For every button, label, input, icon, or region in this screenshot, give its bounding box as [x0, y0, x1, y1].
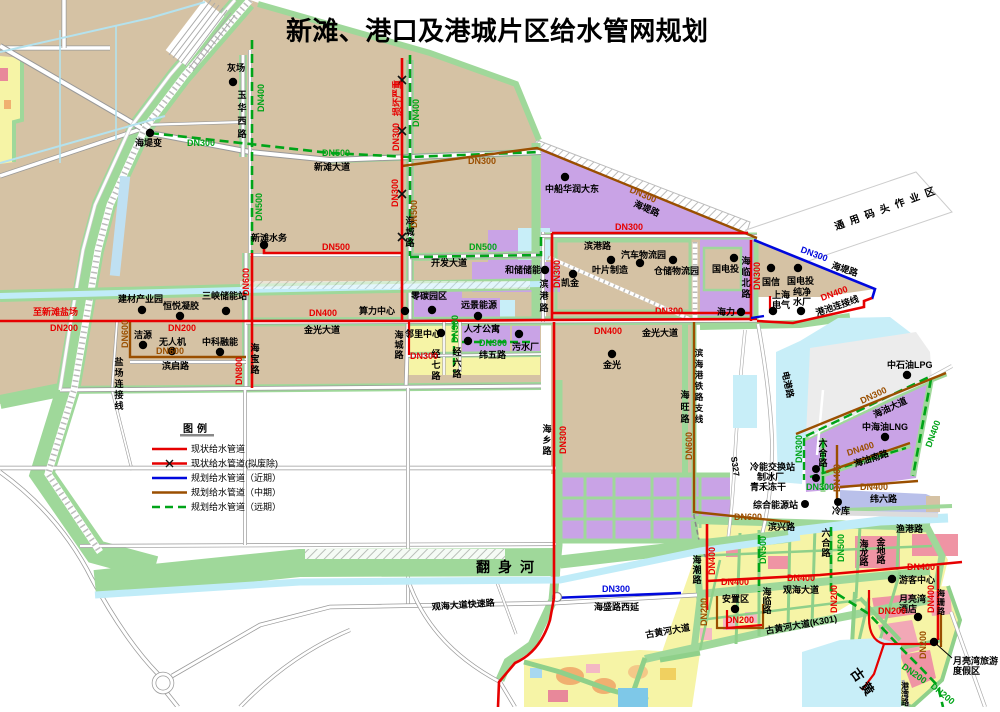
- svg-text:水厂: 水厂: [793, 296, 811, 307]
- svg-text:人才公寓: 人才公寓: [463, 323, 500, 334]
- svg-text:汽车物流园: 汽车物流园: [621, 249, 666, 260]
- svg-text:DN500: DN500: [836, 534, 846, 562]
- svg-text:建材产业园: 建材产业园: [118, 293, 163, 304]
- svg-text:DN300: DN300: [187, 138, 215, 148]
- svg-text:国信: 国信: [762, 276, 780, 287]
- svg-text:零碳园区: 零碳园区: [410, 290, 447, 301]
- svg-text:DN300: DN300: [468, 156, 496, 166]
- svg-text:现状给水管道: 现状给水管道: [191, 443, 245, 454]
- svg-text:污水厂: 污水厂: [512, 341, 539, 352]
- svg-text:金地路: 金地路: [875, 536, 886, 565]
- svg-text:滨港路: 滨港路: [539, 278, 549, 313]
- svg-text:金光大道: 金光大道: [303, 324, 340, 335]
- svg-text:海力: 海力: [717, 306, 735, 317]
- svg-text:凯金: 凯金: [561, 277, 580, 288]
- svg-text:滨海港铁路支线: 滨海港铁路支线: [694, 348, 704, 424]
- svg-text:DN500: DN500: [469, 242, 497, 252]
- svg-text:新滩大道: 新滩大道: [314, 161, 350, 172]
- svg-text:DN300: DN300: [552, 260, 562, 288]
- svg-text:图例: 图例: [183, 422, 211, 435]
- svg-text:DN600: DN600: [684, 432, 694, 460]
- svg-text:游客中心: 游客中心: [899, 574, 935, 585]
- svg-text:新滩水务: 新滩水务: [251, 232, 288, 243]
- svg-text:制冰厂: 制冰厂: [757, 471, 784, 482]
- svg-text:DN300: DN300: [794, 435, 804, 463]
- svg-text:DN300: DN300: [615, 222, 643, 232]
- svg-text:海乡路: 海乡路: [542, 423, 552, 456]
- svg-text:六合路: 六合路: [821, 527, 831, 558]
- svg-text:DN500: DN500: [409, 200, 419, 228]
- svg-text:海珊路: 海珊路: [937, 588, 946, 616]
- svg-text:DN300: DN300: [450, 315, 460, 343]
- svg-text:度假区: 度假区: [953, 665, 980, 676]
- svg-text:中科融能: 中科融能: [202, 336, 238, 347]
- svg-text:现状给水管道(拟废除): 现状给水管道(拟废除): [191, 458, 278, 469]
- svg-text:算力中心: 算力中心: [359, 305, 395, 316]
- svg-text:DN400: DN400: [707, 547, 717, 575]
- svg-text:DN300: DN300: [558, 426, 568, 454]
- svg-text:海堤变: 海堤变: [135, 137, 162, 148]
- svg-text:中石油LPG: 中石油LPG: [887, 359, 933, 370]
- svg-text:DN600: DN600: [734, 512, 762, 522]
- svg-text:DN200: DN200: [829, 585, 839, 613]
- svg-text:DN200: DN200: [878, 606, 906, 616]
- svg-text:DN400: DN400: [411, 99, 421, 127]
- svg-text:月亮湾: 月亮湾: [898, 593, 926, 604]
- svg-text:中船华润大东: 中船华润大东: [545, 183, 599, 194]
- svg-text:海盛路西延: 海盛路西延: [594, 601, 640, 612]
- svg-text:至新滩盐场: 至新滩盐场: [33, 306, 78, 317]
- svg-text:DN400: DN400: [926, 585, 936, 613]
- svg-text:DN500: DN500: [322, 148, 350, 158]
- svg-text:海城路: 海城路: [394, 329, 404, 360]
- svg-text:海潮路: 海潮路: [692, 554, 702, 585]
- svg-text:翻身河: 翻身河: [476, 559, 542, 575]
- svg-text:综合能源站: 综合能源站: [753, 499, 798, 510]
- svg-text:开发大道: 开发大道: [431, 257, 467, 268]
- svg-text:安置区: 安置区: [722, 593, 749, 604]
- svg-text:DN500: DN500: [322, 242, 350, 252]
- svg-text:冷能交换站: 冷能交换站: [750, 461, 795, 472]
- svg-text:经六路: 经六路: [452, 346, 462, 379]
- svg-text:DN800: DN800: [234, 357, 244, 385]
- svg-text:远景能源: 远景能源: [461, 299, 497, 310]
- svg-text:六合路: 六合路: [818, 437, 828, 468]
- svg-text:DN300: DN300: [806, 482, 834, 492]
- svg-text:海旺路: 海旺路: [680, 389, 690, 424]
- svg-text:DN300: DN300: [391, 123, 401, 151]
- svg-text:洁源: 洁源: [134, 329, 152, 340]
- svg-text:DN200: DN200: [699, 598, 709, 626]
- svg-text:DN400: DN400: [907, 562, 935, 572]
- svg-text:DN200: DN200: [726, 615, 754, 625]
- svg-text:DN500: DN500: [758, 536, 768, 564]
- svg-text:海临路: 海临路: [762, 586, 772, 615]
- svg-text:和储储能: 和储储能: [504, 264, 541, 275]
- svg-text:仓储物流园: 仓储物流园: [653, 265, 699, 276]
- svg-text:DN300: DN300: [752, 262, 762, 290]
- svg-text:DN300: DN300: [410, 351, 438, 361]
- svg-text:DN400: DN400: [256, 84, 266, 112]
- svg-text:DN400: DN400: [309, 308, 337, 318]
- svg-text:盐场连接线: 盐场连接线: [114, 356, 124, 411]
- svg-text:损坏严重: 损坏严重: [391, 80, 402, 116]
- svg-text:青禾冻干: 青禾冻干: [750, 481, 786, 492]
- svg-text:DN600: DN600: [156, 346, 184, 356]
- svg-text:月亮湾旅游: 月亮湾旅游: [952, 655, 998, 666]
- svg-text:DN200: DN200: [918, 631, 928, 659]
- svg-text:海宝路: 海宝路: [250, 342, 260, 375]
- svg-text:金光大道: 金光大道: [641, 327, 678, 338]
- svg-text:DN200: DN200: [50, 323, 78, 333]
- svg-text:邻里中心: 邻里中心: [405, 328, 441, 339]
- svg-text:DN600: DN600: [241, 268, 251, 296]
- svg-text:叶片制造: 叶片制造: [592, 264, 629, 275]
- svg-text:DN400: DN400: [594, 326, 622, 336]
- svg-text:纬六路: 纬六路: [870, 493, 898, 504]
- svg-text:DN300: DN300: [655, 306, 683, 316]
- svg-text:金光: 金光: [602, 359, 621, 370]
- svg-text:观海大道: 观海大道: [783, 584, 819, 595]
- svg-text:国电投: 国电投: [787, 275, 814, 286]
- svg-text:DN500: DN500: [254, 193, 264, 221]
- svg-text:DN200: DN200: [168, 323, 196, 333]
- svg-text:DN600: DN600: [120, 320, 130, 348]
- svg-text:DN400: DN400: [787, 573, 815, 583]
- svg-text:冷库: 冷库: [832, 505, 850, 516]
- svg-text:DN300: DN300: [390, 179, 400, 207]
- svg-text:恒悦凝胶: 恒悦凝胶: [163, 300, 199, 311]
- svg-text:滨启路: 滨启路: [162, 360, 190, 371]
- svg-text:规划给水管道（中期）: 规划给水管道（中期）: [191, 487, 281, 498]
- svg-text:纬五路: 纬五路: [479, 349, 507, 360]
- svg-text:滨港路: 滨港路: [584, 240, 612, 251]
- svg-text:滨兴路: 滨兴路: [768, 521, 796, 532]
- svg-text:DN300: DN300: [479, 338, 507, 348]
- svg-text:新滩、港口及港城片区给水管网规划: 新滩、港口及港城片区给水管网规划: [286, 16, 708, 46]
- svg-text:DN300: DN300: [602, 584, 630, 594]
- svg-text:港湾路: 港湾路: [901, 681, 910, 707]
- svg-text:电气: 电气: [772, 299, 790, 310]
- svg-text:灰场: 灰场: [227, 62, 245, 73]
- svg-text:上海: 上海: [772, 289, 790, 300]
- svg-text:渔港路: 渔港路: [896, 523, 924, 534]
- svg-text:DN400: DN400: [860, 482, 888, 492]
- svg-text:DN400: DN400: [721, 577, 749, 587]
- svg-text:规划给水管道（近期）: 规划给水管道（近期）: [191, 472, 281, 483]
- svg-text:纯净: 纯净: [793, 286, 811, 297]
- svg-text:国电投: 国电投: [712, 263, 739, 274]
- svg-text:中海油LNG: 中海油LNG: [862, 421, 908, 432]
- svg-text:海龙路: 海龙路: [858, 538, 869, 567]
- svg-text:规划给水管道（远期）: 规划给水管道（远期）: [191, 501, 281, 512]
